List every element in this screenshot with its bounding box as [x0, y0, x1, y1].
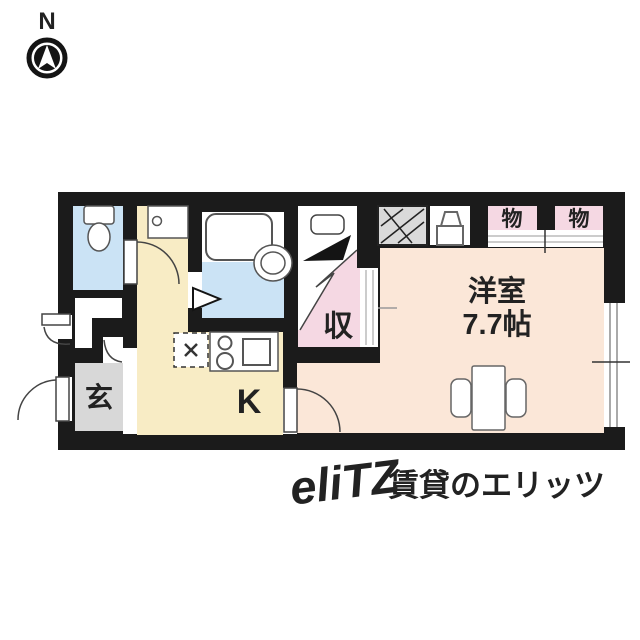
kitchen-fixtures [174, 332, 278, 371]
water-heater-icon [441, 212, 461, 226]
chair-icon [506, 379, 526, 417]
water-heater-body-icon [437, 226, 463, 245]
kitchen-sink-icon [243, 339, 270, 365]
table-icon [472, 366, 505, 430]
appliance-space [430, 206, 470, 245]
toilet-door-leaf [124, 240, 137, 284]
window-strip [604, 303, 625, 427]
floorplan-page: N [0, 0, 640, 640]
door-leaf [284, 388, 297, 432]
closet-side-wall [357, 206, 380, 268]
kitchen-label: K [237, 383, 262, 421]
watermark: eliTZ 賃貸のエリッツ [287, 448, 605, 514]
bath-sink-inner-icon [261, 252, 285, 274]
compass-n-label: N [38, 8, 55, 35]
stairwell-hatch [378, 206, 427, 245]
faucet-icon [153, 217, 162, 226]
watermark-text: 賃貸のエリッツ [387, 468, 605, 503]
main-room-size: 7.7帖 [462, 308, 531, 341]
closet-label: 収 [323, 310, 354, 343]
entrance-label: 玄 [85, 381, 113, 413]
toilet-bowl-icon [88, 223, 110, 251]
compass: N [29, 8, 65, 76]
washbasin [148, 206, 188, 238]
chair-icon [451, 379, 471, 417]
toilet-tank-icon [84, 206, 114, 224]
storage-right-label: 物 [569, 207, 590, 231]
stove-burner-icon [217, 353, 233, 369]
storage-left-label: 物 [502, 207, 523, 231]
stove-burner-icon [219, 337, 232, 350]
stair-top-step [311, 215, 344, 234]
closet-door-strip [360, 268, 378, 347]
entrance-door-arc [18, 380, 56, 420]
watermark-logo: eliTZ [287, 448, 405, 514]
entrance-door-leaf [56, 377, 69, 421]
entrance-step [123, 348, 137, 434]
floorplan-drawing: N [0, 0, 640, 640]
side-door-leaf [42, 314, 70, 325]
main-room-name: 洋室 [468, 274, 526, 308]
